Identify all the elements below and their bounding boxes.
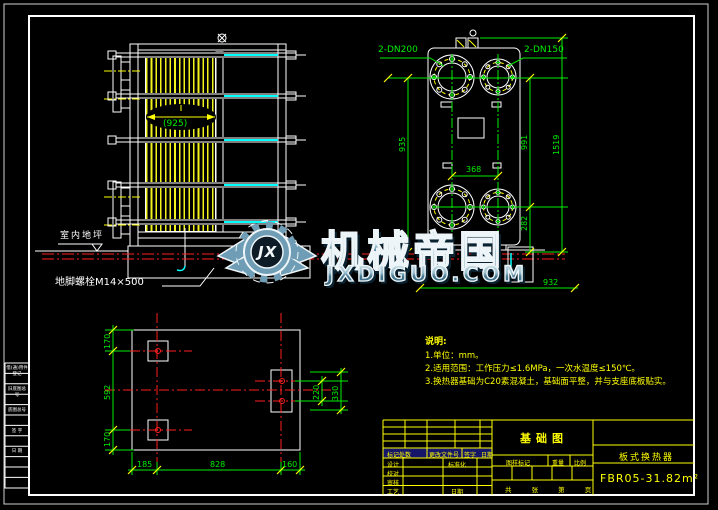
watermark-site-text: JXDIGUO.COM [326,262,528,286]
watermark-monogram: JX [258,243,277,261]
cad-sheet: 借(通)用件登记 旧底图总号 底图总号 签 字 日 期 (925) 室内地坪 地… [0,0,718,510]
